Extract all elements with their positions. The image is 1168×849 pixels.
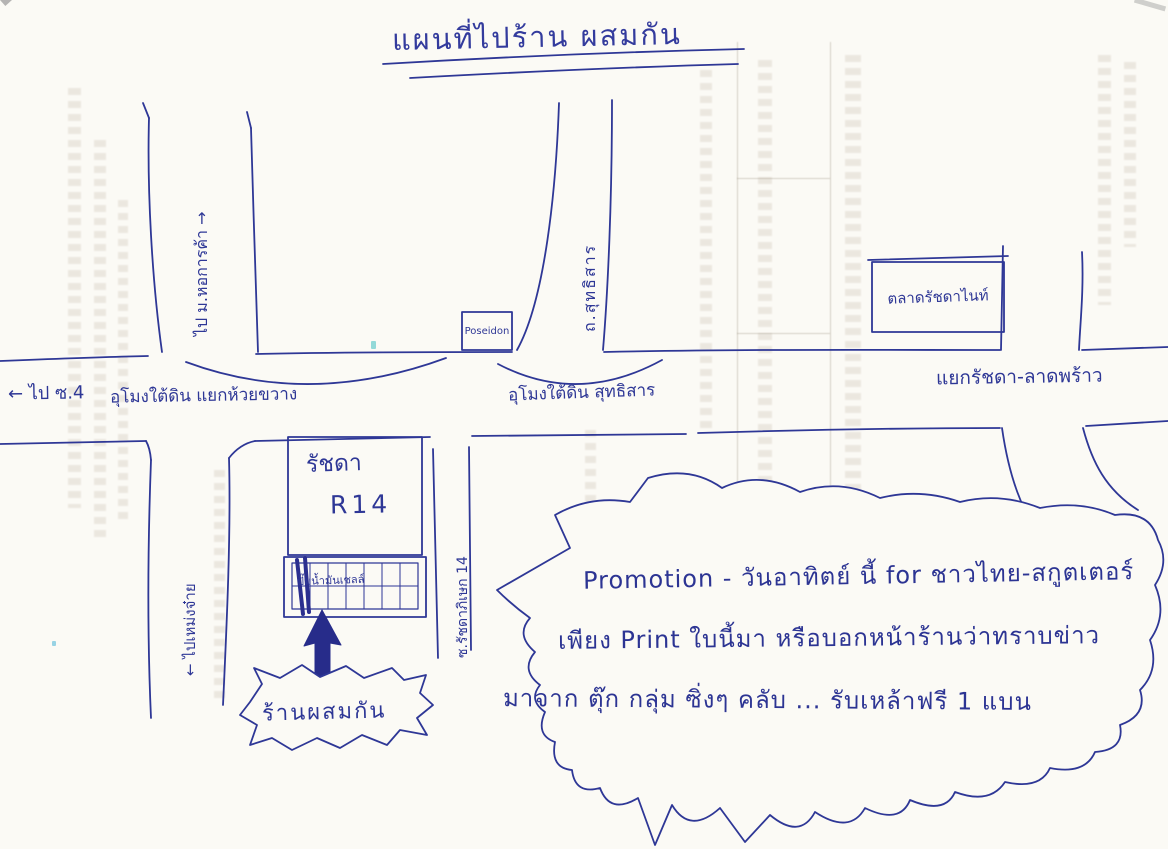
shop-name-label: ร้านผสมกัน — [262, 692, 387, 730]
road-upper-left — [149, 118, 162, 352]
road-main-top — [256, 352, 512, 354]
to-university-label: ไป ม.หอการค้า → — [190, 211, 215, 336]
map-title: แผนที่ไปร้าน ผสมกัน — [392, 11, 683, 63]
to-soi4-label: ← ไป ซ.4 — [8, 377, 85, 407]
road-main-bottom — [698, 428, 1000, 433]
road-lower-left — [229, 441, 255, 458]
tunnel-sutthisan-label: อุโมงใต้ดิน สุทธิสาร — [508, 376, 656, 408]
road-main-bottom — [0, 441, 146, 444]
road-main-top — [1082, 347, 1168, 350]
promotion-text-line2: เพียง Print ใบนี้มา หรือบอกหน้าร้านว่าทร… — [558, 615, 1100, 660]
r14-building-label-line2: R14 — [330, 489, 392, 519]
gas-station-label: ปั๊มน้ำมันเชลล์ — [297, 570, 365, 590]
road-sutthisan — [603, 100, 612, 350]
soi14-label: ซ.รัชดาภิเษก 14 — [452, 556, 474, 658]
scanned-hand-drawn-map: แผนที่ไปร้าน ผสมกัน ← ไป ซ.4 อุโมงใต้ดิน… — [0, 0, 1168, 849]
poseidon-label: Poseidon — [462, 312, 512, 350]
map-drawing — [0, 0, 1168, 849]
promotion-text-line3: มาจาก ตุ๊ก กลุ่ม ซิ่งๆ คลับ ... รับเหล้า… — [503, 678, 1032, 721]
tunnel-huai-khwang-label: อุโมงใต้ดิน แยกห้วยขวาง — [110, 380, 298, 410]
road-sutthisan — [517, 103, 559, 350]
tunnel-curve-huai-khwang — [186, 358, 446, 384]
road-lower-left — [146, 441, 151, 460]
road-main-bottom — [1086, 421, 1168, 426]
road-lower-right — [1083, 428, 1138, 510]
road-main-top — [0, 356, 148, 361]
road-upper-left — [251, 128, 258, 352]
road-upper-left — [143, 103, 149, 118]
road-upper-left — [247, 112, 251, 128]
sutthisan-road-label: ถ.สุทธิสาร — [578, 244, 603, 332]
title-underline — [410, 64, 738, 78]
road-main-bottom — [472, 434, 686, 436]
road-upper-right — [1079, 252, 1083, 350]
r14-building-label-line1: รัชดา — [305, 445, 362, 483]
road-soi14 — [433, 449, 438, 658]
ratchada-ladprao-junction-label: แยกรัชดา-ลาดพร้าว — [936, 361, 1103, 394]
road-lower-left — [223, 458, 230, 705]
road-main-top — [604, 350, 1000, 352]
road-lower-left — [148, 460, 151, 718]
night-market-label: ตลาดรัชดาไนท์ — [871, 260, 1005, 335]
to-mengjai-label: ← ไปเหม่งจ๋าย — [178, 583, 202, 676]
